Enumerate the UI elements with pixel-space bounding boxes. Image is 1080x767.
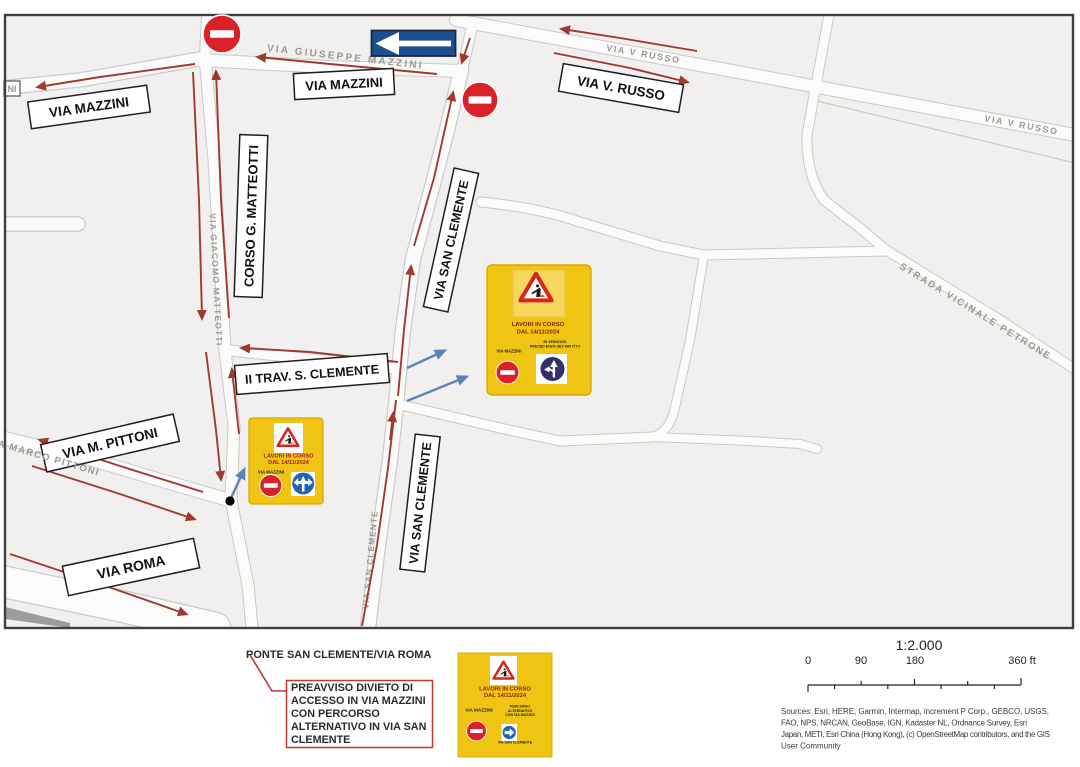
svg-text:CON PERCORSO: CON PERCORSO <box>291 708 380 720</box>
svg-text:1:2.000: 1:2.000 <box>896 637 943 653</box>
svg-text:PREAVVISO DIVIETO DI: PREAVVISO DIVIETO DI <box>291 682 413 694</box>
svg-text:ACCESSO IN VIA MAZZINI: ACCESSO IN VIA MAZZINI <box>291 695 426 707</box>
svg-text:90: 90 <box>855 655 867 667</box>
svg-text:CLEMENTE: CLEMENTE <box>291 734 350 746</box>
svg-text:LAVORI IN CORSO: LAVORI IN CORSO <box>479 687 531 693</box>
svg-text:0: 0 <box>805 655 811 667</box>
svg-text:360 ft: 360 ft <box>1008 655 1036 667</box>
svg-text:VIA SAN CLEMENTE: VIA SAN CLEMENTE <box>498 741 533 745</box>
svg-text:180: 180 <box>906 655 924 667</box>
svg-text:ALTERNATIVO IN VIA SAN: ALTERNATIVO IN VIA SAN <box>291 721 427 733</box>
svg-text:CON VIA MAZZINI: CON VIA MAZZINI <box>505 713 535 717</box>
svg-text:LAVORI IN CORSO: LAVORI IN CORSO <box>264 454 315 460</box>
svg-text:IN VENGONO: IN VENGONO <box>544 340 567 344</box>
svg-text:VIA MAZZINI: VIA MAZZINI <box>258 470 284 475</box>
svg-text:DAL 14/11/2024: DAL 14/11/2024 <box>484 693 527 699</box>
svg-text:PONTE SAN CLEMENTE/VIA ROMA: PONTE SAN CLEMENTE/VIA ROMA <box>246 649 431 661</box>
svg-text:DAL 14/11/2024: DAL 14/11/2024 <box>268 460 310 466</box>
svg-text:NI: NI <box>8 84 17 94</box>
svg-text:LAVORI IN CORSO: LAVORI IN CORSO <box>512 322 565 328</box>
svg-text:PRECED ENZA DEV DIR ITTO: PRECED ENZA DEV DIR ITTO <box>530 345 581 349</box>
svg-text:FAO, NPS, NRCAN, GeoBase, IGN,: FAO, NPS, NRCAN, GeoBase, IGN, Kadaster … <box>781 719 1027 728</box>
svg-text:VIA MAZZINI: VIA MAZZINI <box>465 708 492 713</box>
svg-text:Japan, METI, Esri China (Hong: Japan, METI, Esri China (Hong Kong), (c)… <box>781 730 1050 739</box>
svg-text:User Community: User Community <box>781 742 841 751</box>
svg-text:DAL 14/11/2024: DAL 14/11/2024 <box>517 330 561 336</box>
svg-text:Sources: Esri, HERE, Garmin, I: Sources: Esri, HERE, Garmin, Intermap, i… <box>781 707 1049 716</box>
svg-text:VIA MAZZINI: VIA MAZZINI <box>497 349 522 354</box>
